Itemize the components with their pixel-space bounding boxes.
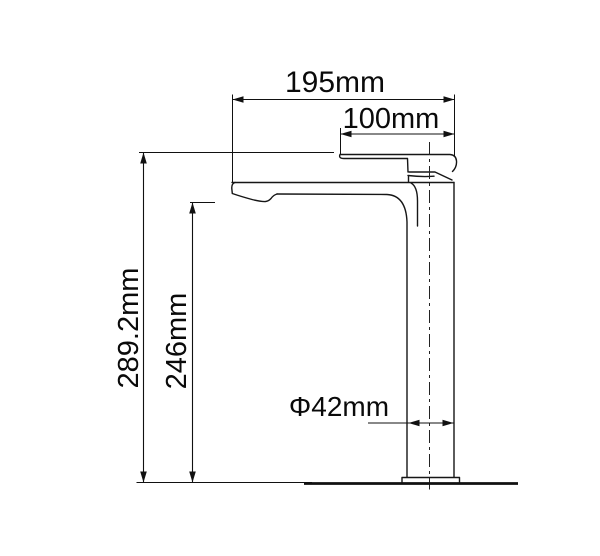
dim-289-label: 289.2mm xyxy=(113,268,145,389)
technical-drawing-canvas: 195mm 100mm 289.2mm 246mm xyxy=(0,0,600,556)
dim-42-label: Φ42mm xyxy=(289,391,389,422)
faucet-spout-underside-and-column-left-edge xyxy=(277,194,407,477)
faucet-dimension-diagram: 195mm 100mm 289.2mm 246mm xyxy=(0,0,600,556)
dim-195-arrow-right xyxy=(444,96,455,103)
dim-195-label: 195mm xyxy=(285,66,385,99)
dim-289-arrow-top xyxy=(140,153,147,164)
faucet-outline xyxy=(232,155,460,484)
faucet-spout-tip xyxy=(232,183,277,202)
dim-100-arrow-right xyxy=(444,131,455,138)
dim-42-arrow-left xyxy=(409,420,420,427)
dim-42-arrow-right xyxy=(443,420,454,427)
dim-246-label: 246mm xyxy=(161,293,193,390)
dimension-overall-height: 289.2mm xyxy=(113,153,334,483)
ground-line xyxy=(137,483,519,484)
faucet-spout-inner-edge xyxy=(411,183,418,226)
dim-289-arrow-bottom xyxy=(140,472,147,483)
dimension-spout-height: 246mm xyxy=(161,203,215,483)
dim-246-arrow-bottom xyxy=(189,472,196,483)
dim-195-arrow-left xyxy=(233,96,244,103)
dim-246-arrow-top xyxy=(189,203,196,214)
dim-100-label: 100mm xyxy=(343,103,440,135)
dimension-top-reach: 100mm xyxy=(341,103,455,154)
faucet-handle-lever xyxy=(340,155,457,183)
